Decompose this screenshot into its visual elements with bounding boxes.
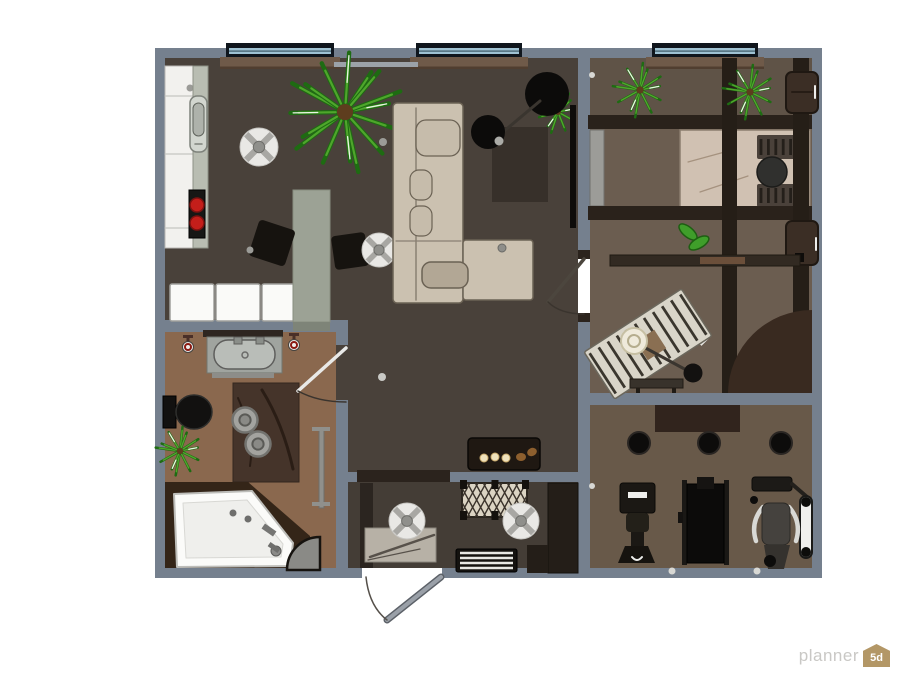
vanity-faucet-2	[256, 337, 264, 344]
toilet-tank[interactable]	[163, 396, 176, 428]
kitchen-round-chair[interactable]	[240, 128, 278, 166]
bench-pulley	[764, 555, 776, 567]
sofa-button	[498, 244, 506, 252]
candle-2	[491, 453, 499, 461]
towel-roll-1[interactable]	[233, 408, 258, 433]
decor-duck-1	[516, 453, 526, 461]
window-living[interactable]	[410, 43, 528, 69]
bed-pouf[interactable]	[757, 157, 787, 187]
island-round-chair[interactable]	[362, 233, 396, 267]
pergola-beam-h2[interactable]	[588, 206, 812, 220]
tub-jet-1	[230, 510, 237, 517]
hall-round-chair-1[interactable]	[389, 503, 425, 539]
entry-door-arc[interactable]	[366, 577, 387, 620]
tv-panel[interactable]	[570, 105, 576, 228]
sofa-cushion-top	[416, 120, 460, 156]
stove-burner-2	[190, 216, 204, 230]
side-table-leg-2	[672, 388, 676, 393]
wall-left[interactable]	[155, 48, 165, 578]
hall-wardrobe[interactable]	[548, 483, 578, 573]
vanity-basin	[214, 340, 275, 369]
sofa-cushion-2	[410, 206, 432, 236]
hall-pass-lintel[interactable]	[357, 470, 450, 482]
towel-rail[interactable]	[319, 428, 324, 508]
cabinet-handle	[187, 85, 194, 92]
pergola-beam-h1[interactable]	[588, 115, 812, 129]
island-base	[293, 322, 330, 331]
watermark-badge-icon: 5d	[863, 644, 890, 667]
weight-ball-2[interactable]	[698, 432, 720, 454]
hall-wardrobe-foot[interactable]	[527, 545, 548, 573]
cable-machine-box[interactable]	[752, 477, 792, 491]
towel-hook-2[interactable]	[289, 333, 300, 351]
stove[interactable]	[189, 190, 205, 238]
door-handle-dot	[378, 373, 386, 381]
floor-dot-sofa	[379, 138, 387, 146]
towel-roll-2[interactable]	[246, 432, 271, 457]
bedroom-wardrobe[interactable]	[590, 130, 604, 206]
pergola-beam-v1[interactable]	[722, 58, 737, 393]
towel-hook-1[interactable]	[183, 335, 194, 353]
cable-knob	[750, 496, 758, 504]
vanity-faucet-1	[234, 337, 242, 344]
wall-bathroom-right-lower[interactable]	[336, 400, 348, 578]
stove-burner-1	[190, 198, 204, 212]
wall-bathroom-right-upper[interactable]	[336, 320, 348, 345]
treadmill-peg	[678, 512, 683, 523]
treadmill-rail-right[interactable]	[724, 480, 729, 565]
lounge-lamp-base[interactable]	[684, 364, 703, 383]
towel-rail-rung-bottom	[312, 502, 330, 506]
watermark: planner 5d	[799, 644, 890, 667]
wall-right[interactable]	[812, 48, 822, 578]
towel-rail-rung-top	[312, 427, 330, 431]
hinge-dot-1	[589, 483, 595, 489]
gym-rug[interactable]	[655, 405, 740, 432]
weight-ball-1[interactable]	[628, 432, 650, 454]
entry-door-leaf[interactable]	[387, 577, 441, 620]
kitchen-table-1[interactable]	[170, 284, 214, 321]
lounge-shelf-inner	[700, 257, 745, 264]
hall-round-chair-2[interactable]	[503, 503, 539, 539]
exercise-machine-display	[628, 492, 647, 498]
sofa-ottoman[interactable]	[422, 262, 468, 288]
treadmill-deck[interactable]	[687, 484, 724, 563]
cable-bar-end-1	[801, 497, 811, 507]
cable-bar-end-2	[801, 547, 811, 557]
candle-1	[480, 454, 488, 462]
candle-3	[502, 454, 510, 462]
weight-ball-3[interactable]	[770, 432, 792, 454]
lounge-side-table[interactable]	[630, 379, 683, 388]
kitchen-table-2[interactable]	[216, 284, 260, 321]
window-bedroom[interactable]	[646, 43, 764, 69]
wall-divider-upper[interactable]	[578, 48, 590, 258]
lounge-lamp-shade[interactable]	[621, 328, 647, 354]
hinge-dot-2	[669, 568, 676, 575]
floorplan-stage: planner 5d	[0, 0, 900, 675]
hinge-dot-3	[754, 568, 761, 575]
hinge-dot-4	[589, 72, 595, 78]
sink-bowl	[193, 103, 204, 136]
watermark-text: planner	[799, 646, 859, 666]
exercise-machine-seat[interactable]	[626, 513, 649, 532]
vanity-backsplash[interactable]	[203, 330, 283, 337]
floor-dot-stool	[247, 247, 254, 254]
tub-jet-2	[245, 516, 252, 523]
4[interactable]	[456, 549, 517, 572]
wall-bottom-left[interactable]	[155, 568, 362, 578]
side-table-leg-1	[636, 388, 640, 393]
vanity-foot	[212, 373, 274, 378]
gym-bench[interactable]	[762, 503, 790, 545]
sofa-cushion-1	[410, 170, 432, 200]
exercise-machine-stem	[631, 532, 644, 548]
floor-lamp-base[interactable]	[495, 137, 504, 146]
treadmill-console	[697, 477, 714, 489]
toilet-bowl[interactable]	[176, 395, 212, 429]
kitchen-island[interactable]	[293, 190, 330, 322]
floorplan-canvas[interactable]	[0, 0, 900, 675]
